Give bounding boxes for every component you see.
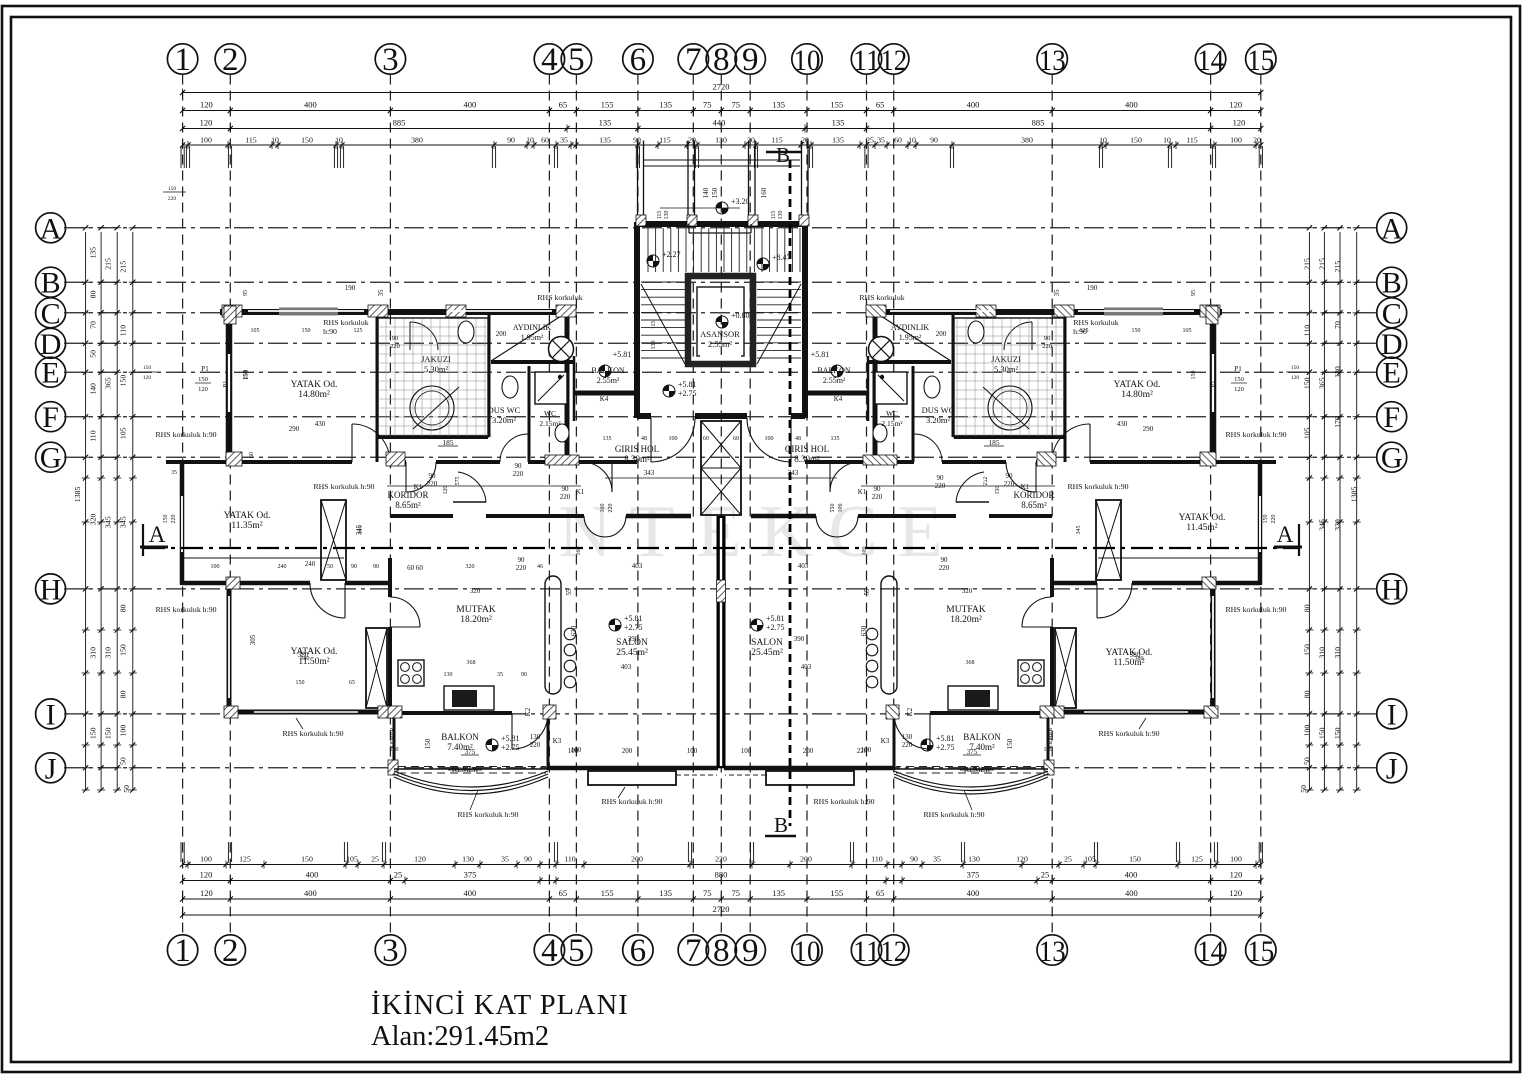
svg-text:880: 880 [715,870,728,880]
svg-text:135: 135 [599,118,612,128]
svg-text:150: 150 [424,738,432,749]
svg-text:35: 35 [877,136,885,145]
svg-text:400: 400 [967,888,980,898]
svg-text:C: C [41,297,61,330]
svg-text:DUS WC: DUS WC [922,405,955,415]
svg-text:9: 9 [742,933,759,969]
svg-text:200: 200 [622,747,633,755]
svg-text:200: 200 [496,330,507,338]
svg-text:50: 50 [119,757,128,765]
svg-text:130: 130 [715,136,727,145]
svg-text:390: 390 [794,635,805,643]
svg-text:50: 50 [1299,785,1308,793]
svg-text:h:90: h:90 [323,327,337,336]
svg-text:140: 140 [89,383,98,395]
svg-text:100: 100 [200,855,212,864]
svg-text:215: 215 [119,261,128,273]
svg-text:ASANSOR: ASANSOR [700,329,740,339]
svg-text:J: J [45,752,57,785]
svg-text:35: 35 [933,855,941,864]
svg-text:403: 403 [798,562,809,570]
svg-text:100: 100 [765,436,774,442]
svg-text:400: 400 [1125,100,1138,110]
svg-text:RHS korkuluk: RHS korkuluk [1073,318,1118,327]
svg-text:135: 135 [89,247,98,259]
svg-text:F: F [42,401,59,434]
svg-text:90: 90 [507,136,515,145]
svg-text:3: 3 [382,42,399,78]
svg-text:H: H [1381,573,1403,606]
svg-text:4: 4 [541,42,558,78]
svg-text:135: 135 [772,100,785,110]
svg-text:320: 320 [962,587,973,595]
svg-text:A: A [1277,522,1294,547]
svg-text:2.55m²: 2.55m² [823,376,846,385]
svg-text:240: 240 [278,564,287,570]
svg-text:F: F [1383,401,1400,434]
svg-text:220: 220 [530,741,541,749]
svg-text:630: 630 [860,625,868,636]
svg-text:14.80m²: 14.80m² [298,390,330,400]
svg-text:14.80m²: 14.80m² [1121,390,1153,400]
svg-text:RHS korkuluk h:90: RHS korkuluk h:90 [1225,605,1286,614]
svg-text:5.30m²: 5.30m² [994,364,1018,374]
svg-text:220: 220 [168,196,177,202]
svg-text:11: 11 [853,44,880,77]
svg-text:130: 130 [444,672,453,678]
svg-text:400: 400 [304,888,317,898]
svg-text:115: 115 [1186,136,1198,145]
svg-text:8.30m²: 8.30m² [624,454,650,464]
svg-text:1: 1 [174,933,191,969]
svg-text:220: 220 [516,564,527,572]
svg-text:100: 100 [571,746,582,754]
svg-text:+5.81: +5.81 [678,380,697,389]
svg-text:İKİNCİ KAT PLANI: İKİNCİ KAT PLANI [371,989,629,1021]
svg-text:150: 150 [198,376,208,383]
svg-text:8.30m²: 8.30m² [794,454,820,464]
svg-text:310: 310 [1317,647,1326,659]
svg-text:35: 35 [377,289,385,297]
svg-text:90: 90 [930,136,938,145]
svg-text:2720: 2720 [713,904,730,914]
svg-text:80: 80 [89,290,98,298]
svg-text:+5.81: +5.81 [624,614,643,623]
svg-text:+5.81: +5.81 [501,734,520,743]
svg-text:WC: WC [544,409,556,418]
svg-text:A: A [1381,212,1403,245]
svg-text:155: 155 [830,888,843,898]
svg-text:100: 100 [861,746,872,754]
svg-text:440: 440 [713,118,726,128]
svg-text:150: 150 [302,328,311,334]
svg-text:35: 35 [171,470,177,476]
svg-text:35: 35 [1053,289,1061,297]
svg-text:8.65m²: 8.65m² [1021,500,1047,510]
svg-text:6: 6 [630,933,647,969]
svg-text:K1: K1 [414,483,423,491]
svg-text:+0.80: +0.80 [731,311,750,320]
svg-text:150: 150 [1302,644,1311,656]
svg-text:25: 25 [866,136,874,145]
svg-text:160: 160 [600,504,606,513]
svg-text:35: 35 [560,136,568,145]
svg-text:80: 80 [119,604,128,612]
svg-text:13: 13 [1039,44,1066,77]
svg-text:90: 90 [518,556,526,564]
svg-text:60 60: 60 60 [407,564,423,572]
svg-text:11: 11 [853,935,880,968]
svg-text:150: 150 [104,727,113,739]
svg-text:150: 150 [711,187,719,198]
svg-text:Alan:291.45m2: Alan:291.45m2 [371,1021,549,1052]
svg-text:155: 155 [601,100,614,110]
svg-text:885: 885 [393,118,406,128]
svg-text:AYDINLIK: AYDINLIK [513,323,552,332]
svg-text:150: 150 [390,747,399,753]
svg-text:6: 6 [630,42,647,78]
svg-text:90: 90 [1006,472,1014,480]
svg-text:375: 375 [967,870,980,880]
svg-text:120: 120 [1229,100,1242,110]
svg-text:12: 12 [880,44,907,77]
svg-text:100: 100 [211,564,220,570]
svg-text:GIRIS HOL: GIRIS HOL [785,444,829,454]
svg-text:90: 90 [937,474,945,482]
svg-text:120: 120 [1291,375,1300,381]
svg-text:BALKON: BALKON [441,732,479,742]
svg-text:MUTFAK: MUTFAK [456,605,496,615]
svg-text:50: 50 [1302,757,1311,765]
svg-text:90: 90 [524,855,532,864]
svg-text:2: 2 [222,42,239,78]
svg-text:120: 120 [200,100,213,110]
svg-text:9: 9 [742,42,759,78]
svg-text:115: 115 [651,321,657,330]
svg-text:120: 120 [1229,888,1242,898]
svg-text:14: 14 [1197,935,1224,968]
svg-text:K3: K3 [881,737,890,745]
svg-text:368: 368 [467,660,476,666]
svg-text:150: 150 [119,375,128,387]
svg-text:135: 135 [772,888,785,898]
svg-text:110: 110 [871,855,883,864]
svg-text:15: 15 [1247,44,1274,77]
svg-text:110: 110 [564,855,576,864]
svg-text:115: 115 [771,211,777,220]
svg-text:55: 55 [565,588,573,596]
svg-text:150: 150 [1191,371,1197,380]
svg-text:150: 150 [1130,136,1142,145]
svg-text:K3: K3 [553,737,562,745]
svg-text:RHS korkuluk h:90: RHS korkuluk h:90 [282,729,343,738]
svg-text:4: 4 [541,933,558,969]
svg-text:380: 380 [411,136,423,145]
svg-text:630: 630 [570,625,578,636]
svg-text:215: 215 [104,258,113,270]
svg-text:25: 25 [1041,870,1050,880]
svg-text:90: 90 [373,564,379,570]
svg-text:25: 25 [1064,855,1072,864]
svg-text:RHS korkuluk h:90: RHS korkuluk h:90 [601,797,662,806]
svg-text:P1: P1 [222,381,229,388]
svg-text:115: 115 [657,211,663,220]
svg-text:310: 310 [1333,647,1342,659]
svg-text:RHS korkuluk h:90: RHS korkuluk h:90 [155,605,216,614]
svg-text:13: 13 [1039,935,1066,968]
svg-text:+2.75: +2.75 [624,623,643,632]
svg-text:B: B [41,267,61,300]
svg-text:+5.81: +5.81 [613,350,632,359]
svg-text:105: 105 [1183,328,1192,334]
svg-text:305: 305 [249,634,257,645]
svg-text:135: 135 [603,436,612,442]
svg-text:8: 8 [713,933,730,969]
svg-text:130: 130 [664,211,670,220]
svg-text:48: 48 [795,436,801,442]
svg-text:150: 150 [301,855,313,864]
svg-text:105: 105 [251,328,260,334]
svg-text:120: 120 [1234,386,1244,393]
svg-text:WC: WC [886,409,898,418]
svg-text:220: 220 [935,482,946,490]
svg-text:E: E [897,491,942,573]
svg-text:150: 150 [301,136,313,145]
svg-text:220: 220 [1042,343,1052,350]
svg-text:E: E [1383,357,1401,390]
svg-text:RHS korkuluk: RHS korkuluk [859,293,904,302]
svg-text:90: 90 [429,472,437,480]
svg-text:220: 220 [560,493,571,501]
svg-text:12: 12 [880,935,907,968]
svg-text:90: 90 [910,855,918,864]
svg-text:150: 150 [1129,855,1141,864]
svg-text:403: 403 [801,663,812,671]
svg-text:1.95m²: 1.95m² [521,333,544,342]
svg-text:140: 140 [702,187,710,198]
svg-text:150: 150 [1234,376,1244,383]
svg-text:125: 125 [239,855,251,864]
svg-text:115: 115 [245,136,257,145]
svg-text:+5.81: +5.81 [936,734,955,743]
svg-text:365: 365 [1317,377,1326,389]
svg-text:120: 120 [1230,870,1243,880]
svg-text:365: 365 [104,377,113,389]
svg-text:RHS korkuluk h:90: RHS korkuluk h:90 [923,810,984,819]
svg-text:RHS korkuluk h:90: RHS korkuluk h:90 [155,430,216,439]
svg-text:125: 125 [1080,328,1089,334]
svg-text:310: 310 [104,647,113,659]
svg-text:400: 400 [304,100,317,110]
svg-text:65: 65 [876,100,885,110]
svg-text:100: 100 [741,747,752,755]
svg-text:90: 90 [874,485,882,493]
svg-text:90: 90 [515,462,523,470]
svg-text:35: 35 [497,672,503,678]
svg-text:I: I [1387,698,1397,731]
svg-text:60: 60 [249,452,255,458]
svg-text:15: 15 [1247,935,1274,968]
svg-text:215: 215 [1333,261,1342,273]
svg-text:150: 150 [89,727,98,739]
svg-text:400: 400 [464,888,477,898]
svg-text:320: 320 [466,564,475,570]
svg-text:380: 380 [301,656,310,662]
svg-text:220: 220 [939,564,950,572]
svg-text:RHS korkuluk: RHS korkuluk [323,318,368,327]
svg-text:1385: 1385 [1350,487,1359,503]
svg-text:25.45m²: 25.45m² [751,648,783,658]
svg-text:2.15m²: 2.15m² [881,419,903,428]
svg-text:170: 170 [1333,416,1342,428]
svg-text:BALKON: BALKON [963,732,1001,742]
svg-text:345: 345 [358,526,364,535]
svg-text:200: 200 [936,330,947,338]
svg-text:5: 5 [568,42,585,78]
svg-text:90: 90 [521,672,527,678]
svg-text:125: 125 [354,328,363,334]
svg-text:130: 130 [651,341,657,350]
svg-text:B: B [1382,267,1402,300]
svg-text:150: 150 [1302,377,1311,389]
svg-text:A: A [40,212,62,245]
svg-text:220: 220 [715,855,727,864]
svg-text:K: K [759,491,812,573]
svg-text:105: 105 [1302,427,1311,439]
svg-text:220: 220 [171,515,177,524]
svg-text:150: 150 [1333,727,1342,739]
svg-text:11.45m²: 11.45m² [1186,523,1217,533]
svg-text:150: 150 [1263,515,1269,524]
svg-text:75: 75 [732,888,741,898]
svg-text:YATAK Od.: YATAK Od. [224,511,271,521]
svg-text:90: 90 [562,485,570,493]
svg-text:G: G [1381,442,1403,475]
svg-text:+3.20: +3.20 [731,197,750,206]
svg-text:RHS korkuluk h:90: RHS korkuluk h:90 [813,797,874,806]
svg-text:G: G [40,442,62,475]
svg-text:J: J [1386,752,1398,785]
svg-text:65: 65 [349,680,355,686]
svg-text:75: 75 [703,100,712,110]
svg-text:290: 290 [289,425,300,433]
svg-text:18.20m²: 18.20m² [950,615,982,625]
svg-text:220: 220 [902,741,913,749]
svg-text:+2.75: +2.75 [766,623,785,632]
svg-text:885: 885 [1032,118,1045,128]
svg-text:100: 100 [669,436,678,442]
svg-text:375: 375 [464,870,477,880]
svg-text:+5.81: +5.81 [766,614,785,623]
svg-text:120: 120 [443,486,449,495]
svg-text:65: 65 [559,100,568,110]
svg-text:90: 90 [351,564,357,570]
svg-text:3.20m²: 3.20m² [492,415,516,425]
svg-text:+2.75: +2.75 [678,389,697,398]
svg-text:60: 60 [894,136,902,145]
svg-text:K1: K1 [1021,483,1030,491]
svg-text:KEMER: KEMER [964,765,990,774]
svg-text:120: 120 [143,375,152,381]
svg-text:+5.81: +5.81 [811,350,830,359]
svg-text:95: 95 [1191,290,1197,296]
svg-text:110: 110 [119,325,128,337]
svg-text:RHS korkuluk: RHS korkuluk [537,293,582,302]
svg-text:A: A [149,522,166,547]
svg-text:5: 5 [568,933,585,969]
svg-text:YATAK Od.: YATAK Od. [291,380,338,390]
svg-text:110: 110 [1302,325,1311,337]
svg-text:70: 70 [89,321,98,329]
svg-text:8.65m²: 8.65m² [395,500,421,510]
svg-text:YATAK Od.: YATAK Od. [1179,513,1226,523]
svg-text:220: 220 [1271,515,1277,524]
svg-text:135: 135 [832,118,845,128]
svg-text:400: 400 [306,870,319,880]
svg-text:80: 80 [119,690,128,698]
svg-text:135: 135 [659,888,672,898]
svg-text:150: 150 [119,644,128,656]
svg-text:135: 135 [599,136,611,145]
svg-text:200: 200 [803,747,814,755]
svg-text:+2.75: +2.75 [501,743,520,752]
svg-text:120: 120 [414,855,426,864]
svg-text:120: 120 [200,888,213,898]
svg-text:MUTFAK: MUTFAK [946,605,986,615]
svg-text:+8.47: +8.47 [772,253,791,262]
svg-text:220: 220 [1004,480,1015,488]
svg-text:K1: K1 [858,488,867,496]
svg-text:200: 200 [631,855,643,864]
svg-text:8: 8 [713,42,730,78]
svg-text:100: 100 [1302,725,1311,737]
svg-text:100: 100 [1230,855,1242,864]
svg-text:290: 290 [1143,425,1154,433]
svg-text:B: B [776,143,790,167]
svg-text:343: 343 [788,469,799,477]
svg-text:403: 403 [632,562,643,570]
svg-text:1: 1 [174,42,191,78]
svg-text:130: 130 [902,733,913,741]
svg-text:90: 90 [392,335,399,342]
svg-text:150: 150 [1006,738,1014,749]
svg-text:190: 190 [345,284,356,292]
svg-text:200: 200 [800,855,812,864]
svg-text:120: 120 [200,870,213,880]
svg-text:E: E [41,357,59,390]
svg-text:5.30m²: 5.30m² [424,364,448,374]
svg-text:368: 368 [966,660,975,666]
svg-text:150: 150 [1044,747,1053,753]
svg-text:3: 3 [382,933,399,969]
svg-text:11.35m²: 11.35m² [231,521,262,531]
svg-text:60: 60 [733,436,739,442]
svg-text:60: 60 [703,436,709,442]
svg-text:135: 135 [832,136,844,145]
svg-text:400: 400 [464,100,477,110]
svg-text:1385: 1385 [73,487,82,503]
svg-text:150: 150 [243,371,249,380]
svg-text:430: 430 [315,420,326,428]
svg-text:130: 130 [530,733,541,741]
svg-text:220: 220 [872,493,883,501]
svg-text:K4: K4 [834,395,843,403]
svg-text:160: 160 [760,187,768,198]
svg-text:RHS korkuluk h:90: RHS korkuluk h:90 [457,810,518,819]
svg-text:400: 400 [1125,870,1138,880]
svg-text:220: 220 [390,343,400,350]
svg-text:I: I [46,698,56,731]
